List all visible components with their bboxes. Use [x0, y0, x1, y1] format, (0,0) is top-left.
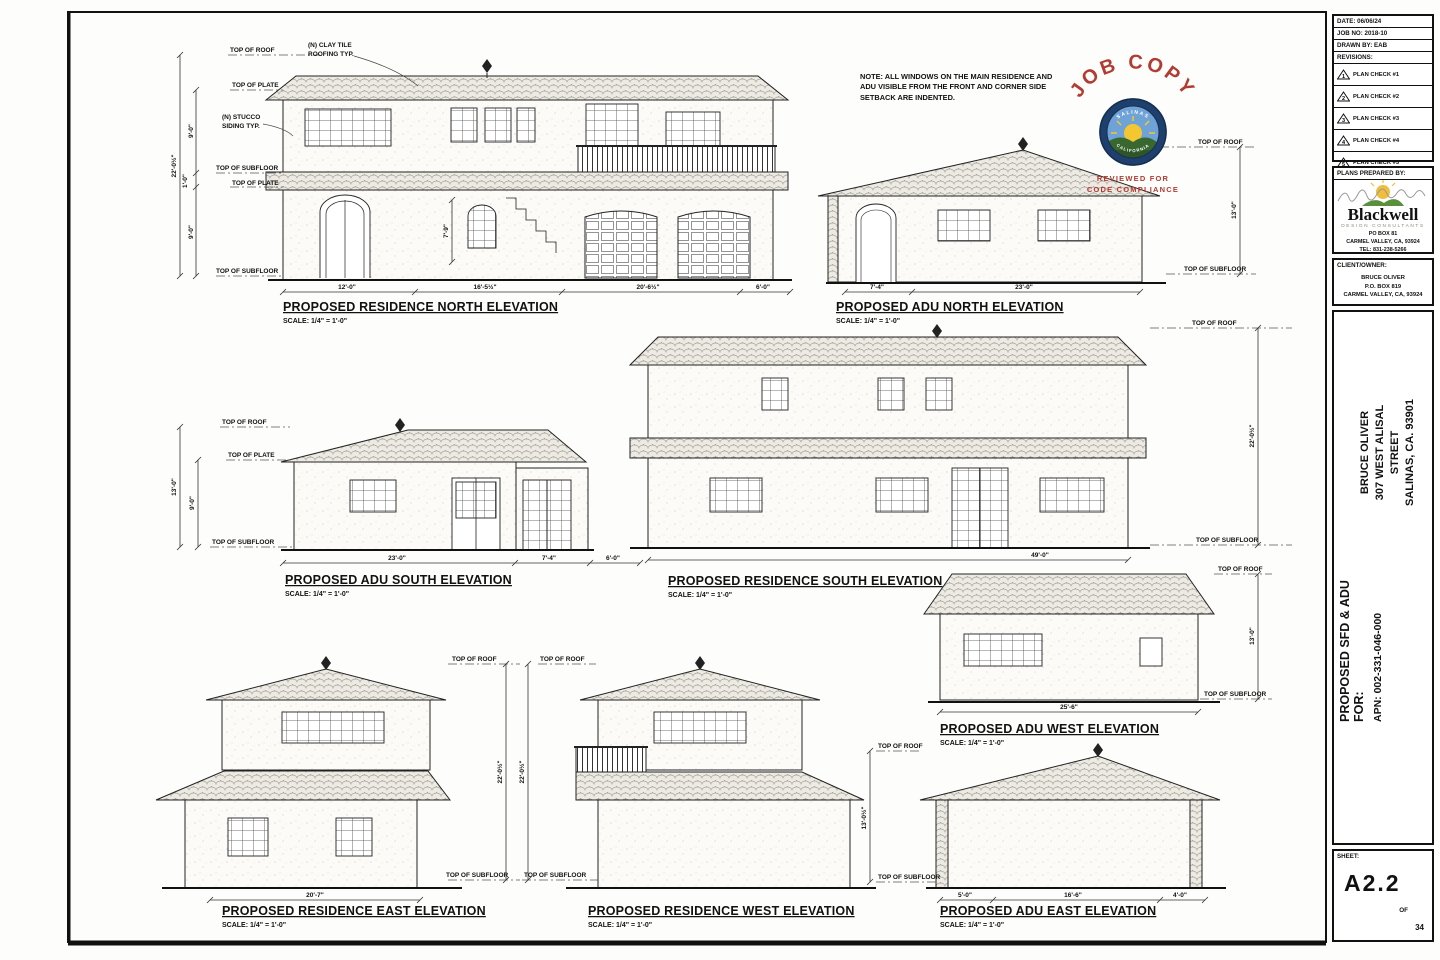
- level-label-top-of-roof: TOP OF ROOF: [1198, 139, 1243, 146]
- level-label-top-of-roof: TOP OF ROOF: [878, 743, 923, 750]
- sun-hills-logo-icon: [1334, 180, 1432, 206]
- dim-band-height: 1'-0": [182, 174, 189, 188]
- dim-height-1: 13'-0": [171, 478, 178, 496]
- revision-delta-icon: 2: [1337, 91, 1350, 102]
- dim-overall-height: 22'-0½": [170, 154, 178, 177]
- dim-height-1: 22'-0½": [518, 760, 526, 783]
- stamp-reviewed-line2: CODE COMPLIANCE: [1087, 185, 1179, 194]
- firm-address: PO BOX 81 CARMEL VALLEY, CA, 93924 TEL: …: [1334, 231, 1432, 254]
- dim-width-1: 23'-0": [388, 555, 406, 562]
- revision-row: 1 PLAN CHECK #1: [1334, 63, 1432, 85]
- level-label-top-of-roof: TOP OF ROOF: [540, 656, 585, 663]
- client-address-line1: P.O. BOX 819: [1334, 283, 1432, 292]
- elevation-title: PROPOSED RESIDENCE NORTH ELEVATION: [283, 300, 558, 314]
- firm-telephone: TEL: 831-238-5266: [1334, 247, 1432, 255]
- elevation-title: PROPOSED ADU SOUTH ELEVATION: [285, 573, 512, 587]
- level-label-top-of-subfloor: TOP OF SUBFLOOR: [1204, 691, 1267, 698]
- firm-tagline: DESIGN CONSULTANTS: [1334, 224, 1432, 229]
- plans-prepared-by-box: PLANS PREPARED BY: Blackwell DESIGN CONS…: [1332, 166, 1434, 254]
- revision-delta-icon: 3: [1337, 113, 1350, 124]
- elevation-title: PROPOSED RESIDENCE SOUTH ELEVATION: [668, 574, 942, 588]
- dim-stair-height: 7'-9": [443, 224, 450, 238]
- elevation-scale: SCALE: 1/4" = 1'-0": [836, 318, 900, 325]
- firm-address-line2: CARMEL VALLEY, CA, 93924: [1334, 239, 1432, 247]
- client-owner-label: CLIENT/OWNER:: [1334, 260, 1432, 271]
- client-name: BRUCE OLIVER: [1334, 274, 1432, 283]
- residence-east-elevation: TOP OF ROOF TOP OF SUBFLOOR 22'-0½" 20'-…: [156, 656, 520, 929]
- sheet-label: SHEET:: [1334, 851, 1432, 862]
- project-owner-address: BRUCE OLIVER 307 WEST ALISAL STREET SALI…: [1358, 385, 1417, 520]
- elevation-title: PROPOSED ADU WEST ELEVATION: [940, 722, 1159, 736]
- level-label-top-of-subfloor: TOP OF SUBFLOOR: [1196, 537, 1259, 544]
- dim-height-1: 13'-0": [1231, 201, 1238, 219]
- level-label-top-of-subfloor: TOP OF SUBFLOOR: [878, 874, 941, 881]
- level-label-top-of-plate: TOP OF PLATE: [232, 82, 279, 89]
- residence-west-elevation: TOP OF ROOF TOP OF SUBFLOOR 22'-0½" PROP…: [518, 656, 876, 929]
- drawn-by-field: DRAWN BY: EAB: [1334, 40, 1432, 52]
- job-number-field: JOB NO: 2018-10: [1334, 28, 1432, 40]
- level-label-top-of-roof: TOP OF ROOF: [1192, 320, 1237, 327]
- dim-height-1: 22'-0½": [1248, 424, 1256, 447]
- revision-label: PLAN CHECK #2: [1353, 94, 1399, 100]
- dim-width-3: 4'-0": [1173, 892, 1187, 899]
- level-label-top-of-subfloor: TOP OF SUBFLOOR: [216, 268, 279, 275]
- project-for-label: PROPOSED SFD & ADU FOR:: [1338, 572, 1366, 722]
- dim-width-1: 5'-0": [958, 892, 972, 899]
- prepared-by-label: PLANS PREPARED BY:: [1334, 168, 1432, 180]
- sheet-number: A2.2: [1344, 870, 1432, 897]
- level-label-top-of-roof: TOP OF ROOF: [230, 47, 275, 54]
- stucco-note-line1: (N) STUCCO: [222, 114, 260, 121]
- svg-text:1: 1: [1342, 74, 1345, 80]
- level-label-top-of-subfloor: TOP OF SUBFLOOR: [1184, 266, 1247, 273]
- level-label-top-of-roof: TOP OF ROOF: [222, 419, 267, 426]
- revision-delta-icon: 4: [1337, 135, 1350, 146]
- elevation-title: PROPOSED RESIDENCE WEST ELEVATION: [588, 904, 855, 918]
- level-label-top-of-subfloor: TOP OF SUBFLOOR: [212, 539, 275, 546]
- date-field: DATE: 06/06/24: [1334, 16, 1432, 28]
- stamp-title: JOB COPY: [1066, 51, 1200, 101]
- elevation-scale: SCALE: 1/4" = 1'-0": [940, 922, 1004, 929]
- dim-height-1: 22'-0½": [496, 760, 504, 783]
- elevation-title: PROPOSED RESIDENCE EAST ELEVATION: [222, 904, 486, 918]
- revision-label: PLAN CHECK #4: [1353, 138, 1399, 144]
- clay-tile-note-line1: (N) CLAY TILE: [308, 42, 352, 49]
- elevations-canvas: TOP OF ROOF TOP OF PLATE TOP OF SUBFLOOR…: [0, 0, 1330, 960]
- residence-south-elevation: TOP OF ROOF TOP OF SUBFLOOR 22'-0½" 49'-…: [630, 320, 1292, 599]
- dim-height-1: 13'-0½": [860, 806, 868, 829]
- client-owner-info: BRUCE OLIVER P.O. BOX 819 CARMEL VALLEY,…: [1334, 274, 1432, 300]
- firm-name: Blackwell: [1334, 206, 1432, 223]
- level-label-top-of-subfloor: TOP OF SUBFLOOR: [216, 165, 279, 172]
- level-label-top-of-subfloor: TOP OF SUBFLOOR: [446, 872, 509, 879]
- project-identity-box: BRUCE OLIVER 307 WEST ALISAL STREET SALI…: [1332, 310, 1434, 845]
- residence-north-elevation: TOP OF ROOF TOP OF PLATE TOP OF SUBFLOOR…: [170, 42, 793, 325]
- clay-tile-note-line2: ROOFING TYP.: [308, 51, 354, 58]
- firm-logo: [1334, 180, 1432, 206]
- dim-width-2: 7'-4": [542, 555, 556, 562]
- general-note: NOTE: ALL WINDOWS ON THE MAIN RESIDENCE …: [860, 72, 1056, 103]
- dim-width-2: 16'-6": [1064, 892, 1082, 899]
- project-owner-name: BRUCE OLIVER: [1358, 385, 1373, 520]
- revision-row: 2 PLAN CHECK #2: [1334, 85, 1432, 107]
- level-label-top-of-subfloor: TOP OF SUBFLOOR: [524, 872, 587, 879]
- dim-width-1: 20'-7": [306, 892, 324, 899]
- dim-height-1: 13'-0": [1249, 627, 1256, 645]
- stucco-note-line2: SIDING TYP.: [222, 123, 260, 130]
- level-label-top-of-roof: TOP OF ROOF: [452, 656, 497, 663]
- adu-west-elevation: TOP OF ROOF TOP OF SUBFLOOR 13'-0" 25'-6…: [924, 566, 1272, 747]
- dim-width-1: 49'-0": [1031, 552, 1049, 559]
- drawing-sheet: TOP OF ROOF TOP OF PLATE TOP OF SUBFLOOR…: [0, 0, 1440, 960]
- client-owner-box: CLIENT/OWNER: BRUCE OLIVER P.O. BOX 819 …: [1332, 258, 1434, 306]
- adu-north-elevation: TOP OF ROOF TOP OF SUBFLOOR 13'-0" 7'-4"…: [818, 137, 1256, 325]
- project-apn: APN: 002-331-046-000: [1372, 572, 1384, 722]
- client-address-line2: CARMEL VALLEY, CA, 93924: [1334, 291, 1432, 300]
- title-block-info: DATE: 06/06/24 JOB NO: 2018-10 DRAWN BY:…: [1332, 14, 1434, 162]
- sheet-total: 34: [1415, 923, 1424, 932]
- level-label-top-of-plate: TOP OF PLATE: [228, 452, 275, 459]
- dim-width-4: 6'-0": [756, 284, 770, 291]
- dim-upper-height: 9'-0": [188, 124, 195, 138]
- revision-delta-icon: 1: [1337, 69, 1350, 80]
- elevation-scale: SCALE: 1/4" = 1'-0": [283, 318, 347, 325]
- dim-width-1: 12'-0": [338, 284, 356, 291]
- elevation-scale: SCALE: 1/4" = 1'-0": [285, 591, 349, 598]
- dim-lower-height: 9'-0": [188, 225, 195, 239]
- level-label-top-of-roof: TOP OF ROOF: [1218, 566, 1263, 573]
- stamp-reviewed-line1: REVIEWED FOR: [1097, 174, 1169, 183]
- revision-label: PLAN CHECK #1: [1353, 72, 1399, 78]
- svg-text:2: 2: [1342, 96, 1345, 102]
- project-address-line1: 307 WEST ALISAL STREET: [1373, 385, 1403, 520]
- dim-width-1: 25'-6": [1060, 704, 1078, 711]
- elevation-scale: SCALE: 1/4" = 1'-0": [940, 740, 1004, 747]
- elevation-scale: SCALE: 1/4" = 1'-0": [222, 922, 286, 929]
- elevation-scale: SCALE: 1/4" = 1'-0": [588, 922, 652, 929]
- firm-address-line1: PO BOX 81: [1334, 231, 1432, 239]
- revisions-label: REVISIONS:: [1334, 52, 1432, 63]
- dim-width-2: 16'-5½": [473, 283, 496, 291]
- revision-row: 3 PLAN CHECK #3: [1334, 107, 1432, 129]
- adu-east-elevation: TOP OF ROOF TOP OF SUBFLOOR 13'-0½" 5'-0…: [860, 743, 1226, 929]
- dim-width-2: 23'-0": [1015, 284, 1033, 291]
- project-for-apn: PROPOSED SFD & ADU FOR: APN: 002-331-046…: [1338, 572, 1384, 722]
- dim-width-3: 20'-6½": [636, 283, 659, 291]
- dim-height-2: 9'-0": [189, 496, 196, 510]
- revision-label: PLAN CHECK #5: [1353, 160, 1399, 166]
- dim-width-1: 7'-4": [870, 284, 884, 291]
- revision-label: PLAN CHECK #3: [1353, 116, 1399, 122]
- elevation-title: PROPOSED ADU EAST ELEVATION: [940, 904, 1156, 918]
- title-block: DATE: 06/06/24 JOB NO: 2018-10 DRAWN BY:…: [1331, 0, 1437, 960]
- svg-text:3: 3: [1342, 118, 1345, 124]
- project-address-line2: SALINAS, CA. 93901: [1403, 385, 1418, 520]
- sheet-of-label: OF: [1399, 907, 1408, 914]
- level-label-top-of-plate: TOP OF PLATE: [232, 180, 279, 187]
- dim-width-3: 6'-0": [606, 555, 620, 562]
- elevation-title: PROPOSED ADU NORTH ELEVATION: [836, 300, 1064, 314]
- sheet-number-box: SHEET: A2.2 OF 34: [1332, 849, 1434, 942]
- elevation-scale: SCALE: 1/4" = 1'-0": [668, 592, 732, 599]
- adu-south-elevation: TOP OF ROOF TOP OF PLATE TOP OF SUBFLOOR…: [171, 418, 643, 598]
- revision-row: 4 PLAN CHECK #4: [1334, 129, 1432, 151]
